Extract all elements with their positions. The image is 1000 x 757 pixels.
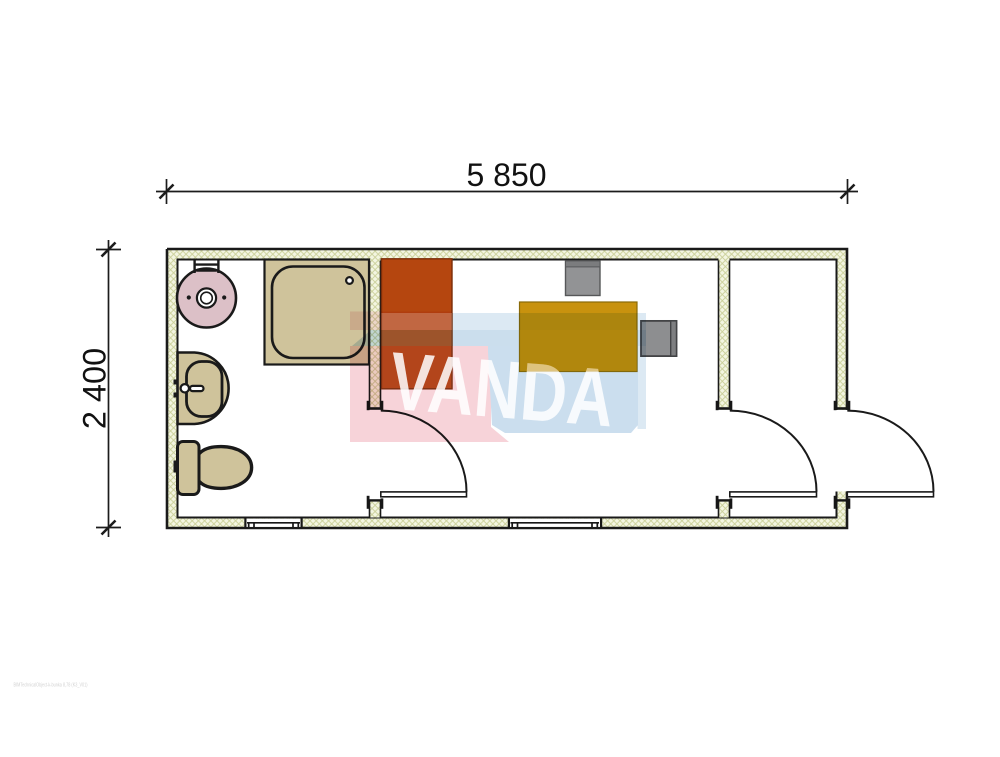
svg-text:BIMTechnicalObject-k-bunka 8,7: BIMTechnicalObject-k-bunka 8,78 (K3_V01) bbox=[14, 682, 88, 688]
svg-text:5 850: 5 850 bbox=[466, 157, 546, 193]
svg-text:2 400: 2 400 bbox=[77, 348, 113, 429]
